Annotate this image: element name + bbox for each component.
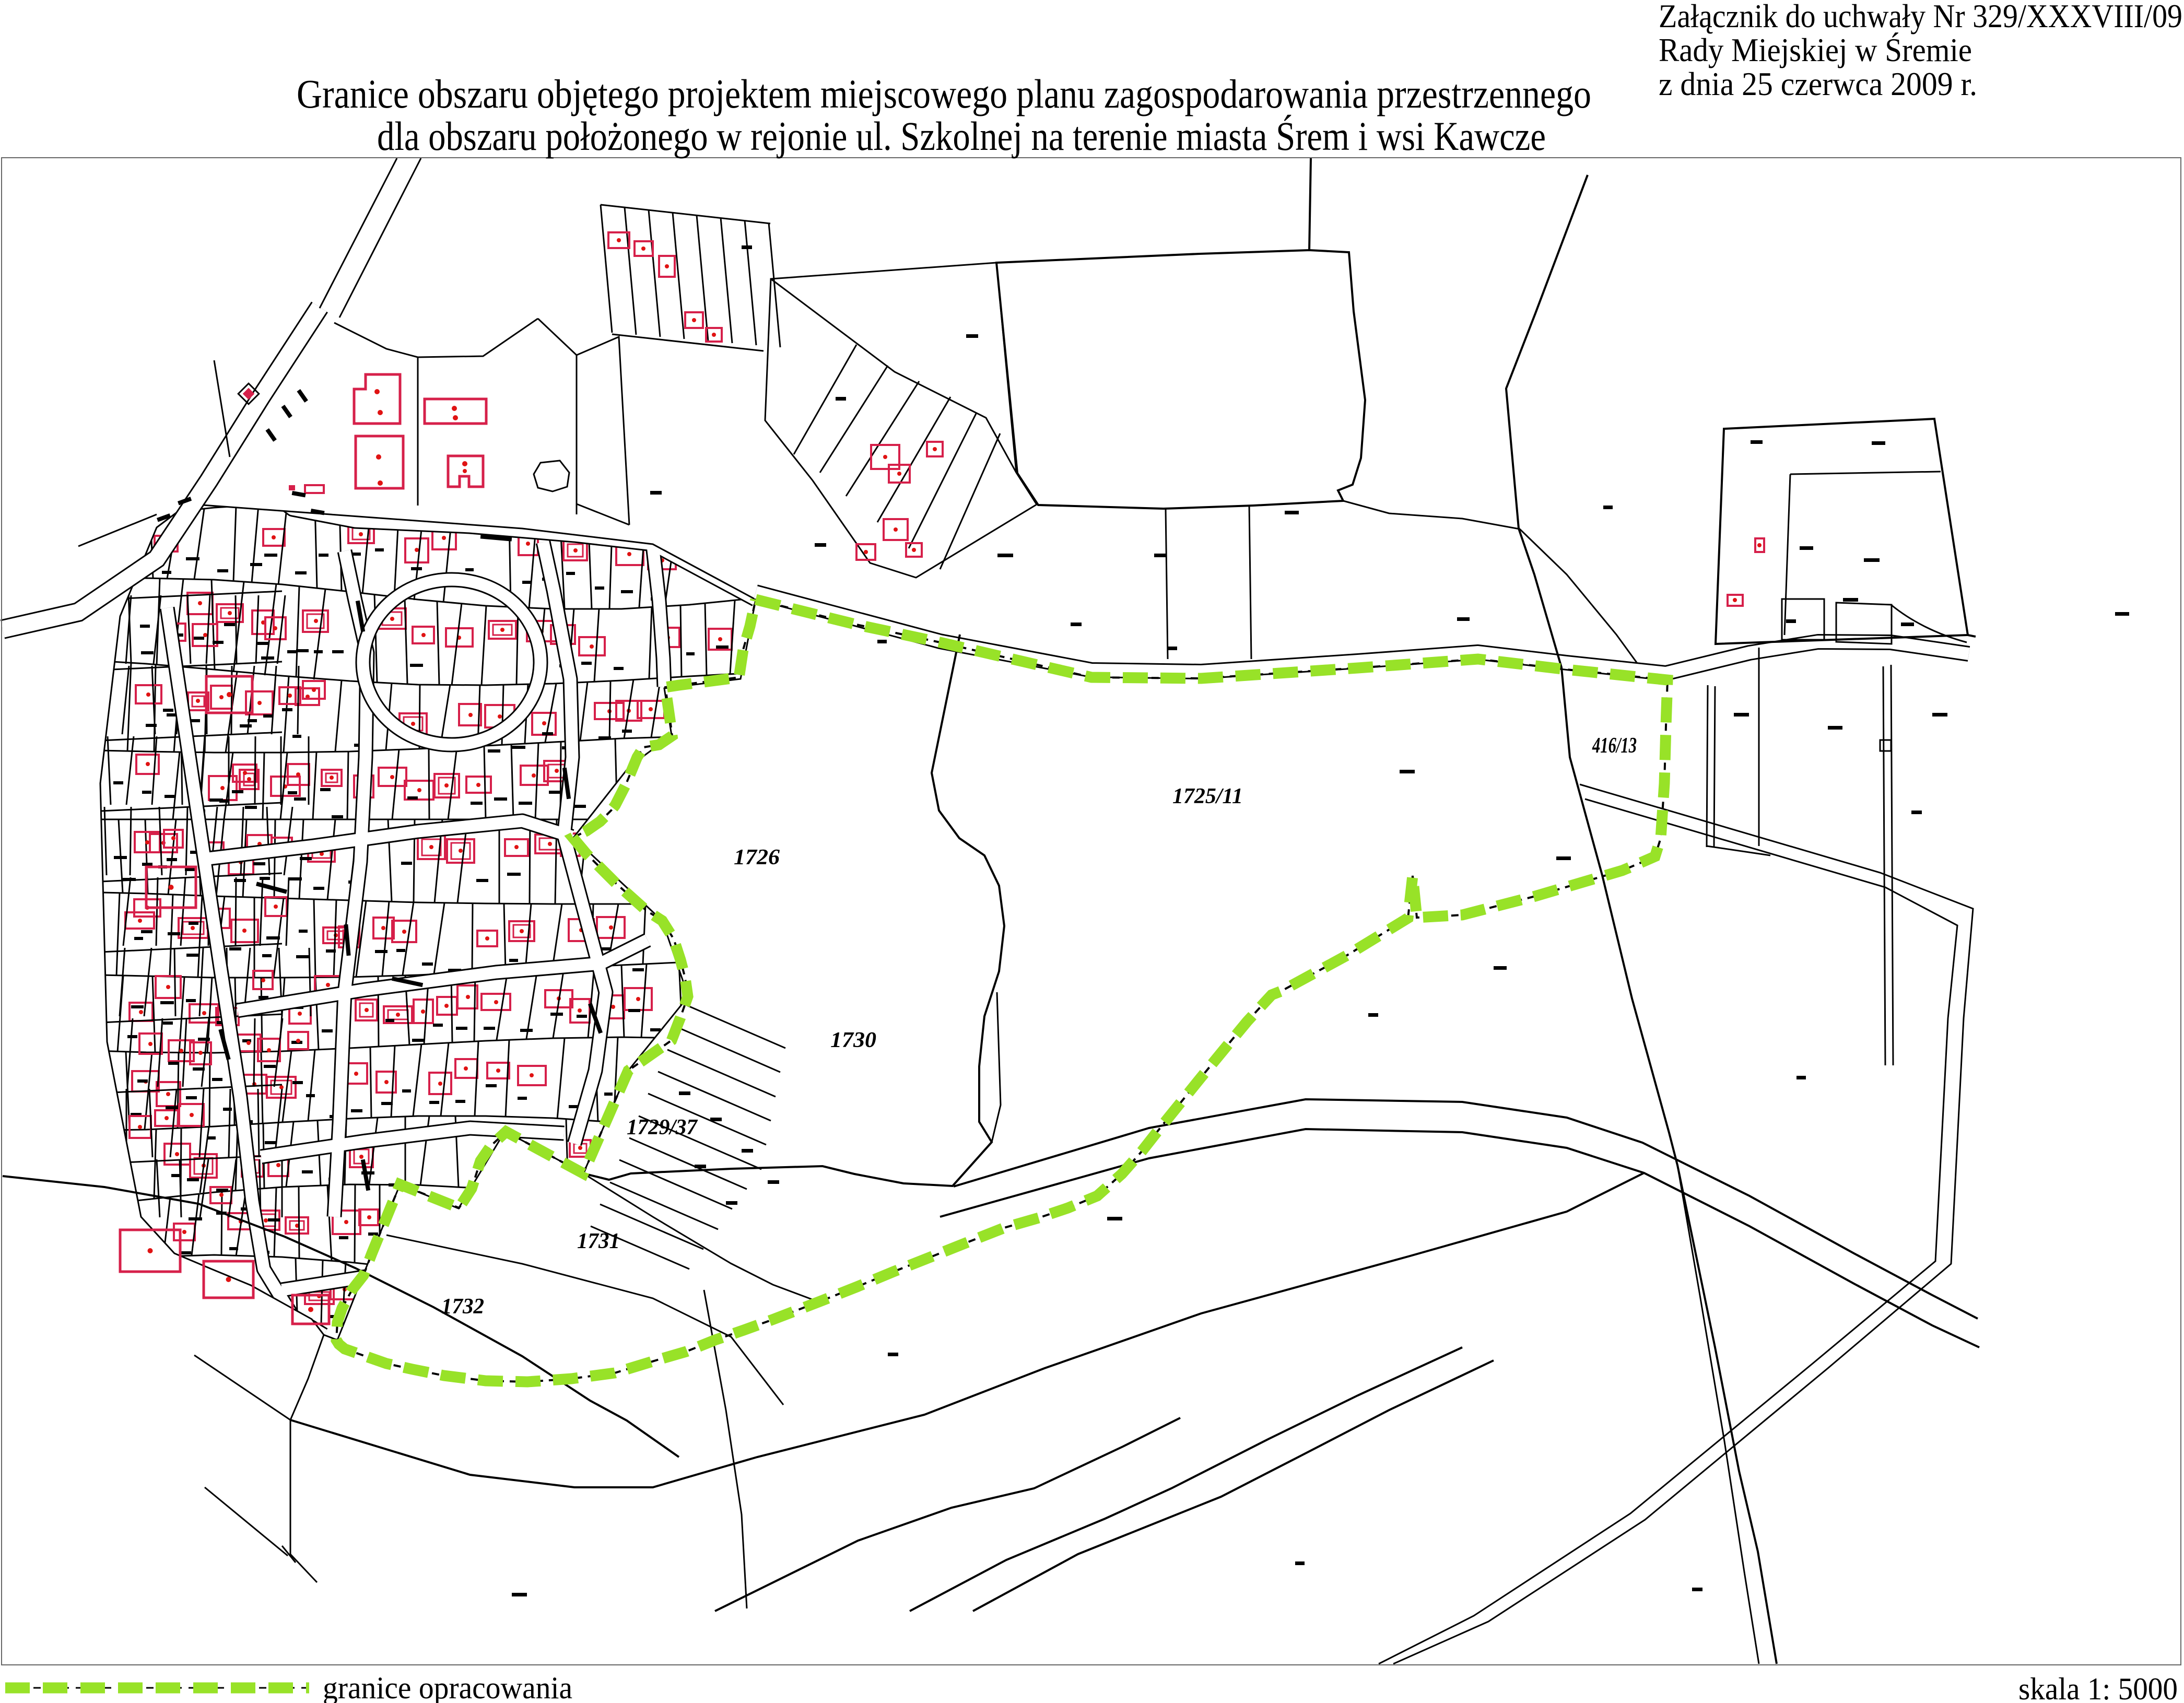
svg-text:granice opracowania: granice opracowania <box>323 1671 572 1703</box>
svg-text:1732: 1732 <box>441 1295 484 1319</box>
svg-text:Granice obszaru objętego proje: Granice obszaru objętego projektem miejs… <box>297 71 1591 116</box>
svg-text:1730: 1730 <box>830 1028 876 1052</box>
svg-text:416/13: 416/13 <box>1592 734 1637 758</box>
svg-text:Załącznik do uchwały Nr 329/XX: Załącznik do uchwały Nr 329/XXXVIII/09 <box>1659 0 2182 34</box>
svg-text:1731: 1731 <box>577 1229 620 1253</box>
svg-text:dla obszaru położonego w rejon: dla obszaru położonego w rejonie ul. Szk… <box>377 113 1546 159</box>
svg-text:skala 1: 5000: skala 1: 5000 <box>2018 1672 2178 1703</box>
svg-text:z dnia 25 czerwca 2009 r.: z dnia 25 czerwca 2009 r. <box>1659 65 1977 102</box>
svg-text:Rady Miejskiej w Śremie: Rady Miejskiej w Śremie <box>1659 31 1972 68</box>
svg-text:1725/11: 1725/11 <box>1172 784 1243 808</box>
svg-text:1726: 1726 <box>734 845 780 870</box>
svg-text:1729/37: 1729/37 <box>627 1115 698 1140</box>
